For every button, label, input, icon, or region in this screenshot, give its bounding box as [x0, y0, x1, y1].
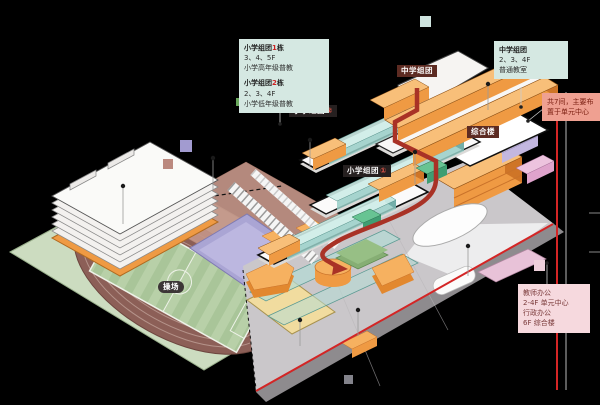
label-middle-school-cluster: 中学组团	[397, 65, 437, 77]
info-line: 普通教室	[499, 65, 563, 75]
swatch-pink	[534, 260, 545, 271]
swatch-gray	[344, 375, 353, 384]
info-block-1: 小学组团1栋 3、4、5F 小学高年级普教	[244, 43, 324, 73]
infobox-middle-school: 中学组团 2、3、4F 普通教室	[494, 41, 568, 79]
label-text: 小学组团	[347, 166, 379, 175]
label-number: ①	[380, 166, 387, 175]
label-text: 操场	[163, 282, 179, 291]
info-line: 小学低年级普教	[244, 99, 324, 109]
info-line: 3、4、5F	[244, 53, 324, 63]
info-line: 小学高年级普教	[244, 63, 324, 73]
swatch-purple	[180, 140, 192, 152]
info-title: 中学组团	[499, 45, 563, 55]
info-line: 2、3、4F	[244, 89, 324, 99]
label-playground: 操场	[158, 281, 184, 293]
info-block-2: 小学组团2栋 2、3、4F 小学低年级普教	[244, 78, 324, 108]
label-text: 综合楼	[471, 127, 495, 136]
label-complex-building: 综合楼	[467, 126, 499, 138]
info-line: 行政办公	[523, 308, 585, 318]
campus-axonometric-diagram: 中学组团 小学组团② 综合楼 小学组团① 操场 小学组团1栋 3、4、5F 小学…	[0, 0, 600, 405]
label-text: 中学组团	[401, 66, 433, 75]
info-title: 小学组团2栋	[244, 78, 324, 88]
swatch-rose	[163, 159, 173, 169]
infobox-office: 教师办公 2-4F 单元中心 行政办公 6F 综合楼	[518, 284, 590, 333]
margin-marks	[566, 92, 600, 390]
info-line: 置于单元中心	[547, 107, 600, 117]
info-line: 共7间，主要布	[547, 97, 600, 107]
info-line: 2、3、4F	[499, 55, 563, 65]
info-line: 6F 综合楼	[523, 318, 585, 328]
infobox-primary-clusters: 小学组团1栋 3、4、5F 小学高年级普教 小学组团2栋 2、3、4F 小学低年…	[239, 39, 329, 113]
info-line: 2-4F 单元中心	[523, 298, 585, 308]
swatch-teal	[420, 16, 431, 27]
label-primary-cluster-1: 小学组团①	[343, 165, 391, 177]
infobox-unit-note: 共7间，主要布 置于单元中心	[542, 93, 600, 121]
info-title: 小学组团1栋	[244, 43, 324, 53]
info-line: 教师办公	[523, 288, 585, 298]
